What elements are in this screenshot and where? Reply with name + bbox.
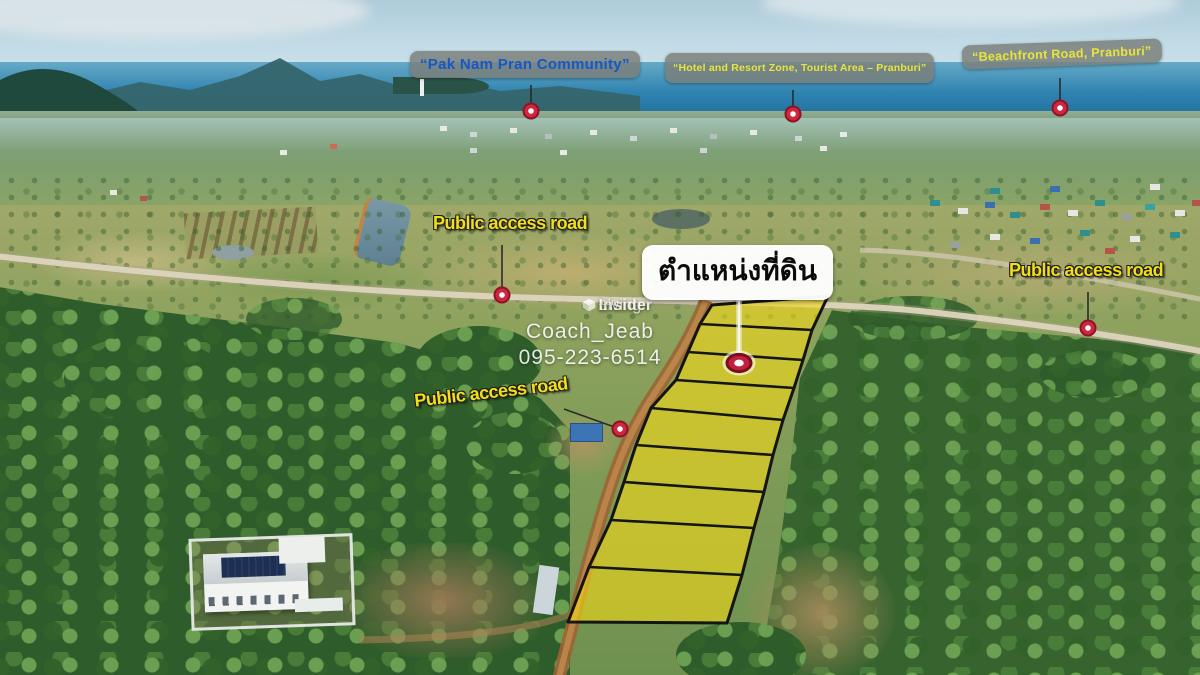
label-public-access-road-top: Public access road [433,213,587,234]
pin-hotel-resort-zone [786,107,801,122]
pin-beachfront-road [1053,101,1068,116]
pin-center [1085,325,1091,331]
label-public-access-road-right: Public access road [1009,260,1163,281]
watermark-agent-name: Coach_Jeab [488,320,692,344]
pin-center [1057,105,1063,111]
pin-center [790,111,796,117]
pin-center [528,108,534,114]
driveway [360,612,575,640]
pin-connector [564,409,620,429]
watermark: LivingInsider.com Coach_Jeab 095-223-651… [488,297,692,370]
livinginsider-cube-icon [582,298,596,312]
pin-center [734,360,744,367]
callout-pak-nam-pran-community: “Pak Nam Pran Community” [410,51,640,78]
pin-pak-nam-community [524,104,539,119]
callout-hotel-resort-zone: “Hotel and Resort Zone, Tourist Area – P… [665,53,934,83]
brand-tld: .com [599,297,619,307]
pin-land-position [724,352,754,374]
watermark-phone-number: 095-223-6514 [488,346,692,370]
pin-center [617,426,623,432]
pin-road-right [1081,321,1096,336]
aerial-land-plot-photo: “Pak Nam Pran Community” “Hotel and Reso… [0,0,1200,675]
callout-land-position-thai: ตำแหน่งที่ดิน [642,245,833,300]
pin-road-mid [613,422,628,437]
